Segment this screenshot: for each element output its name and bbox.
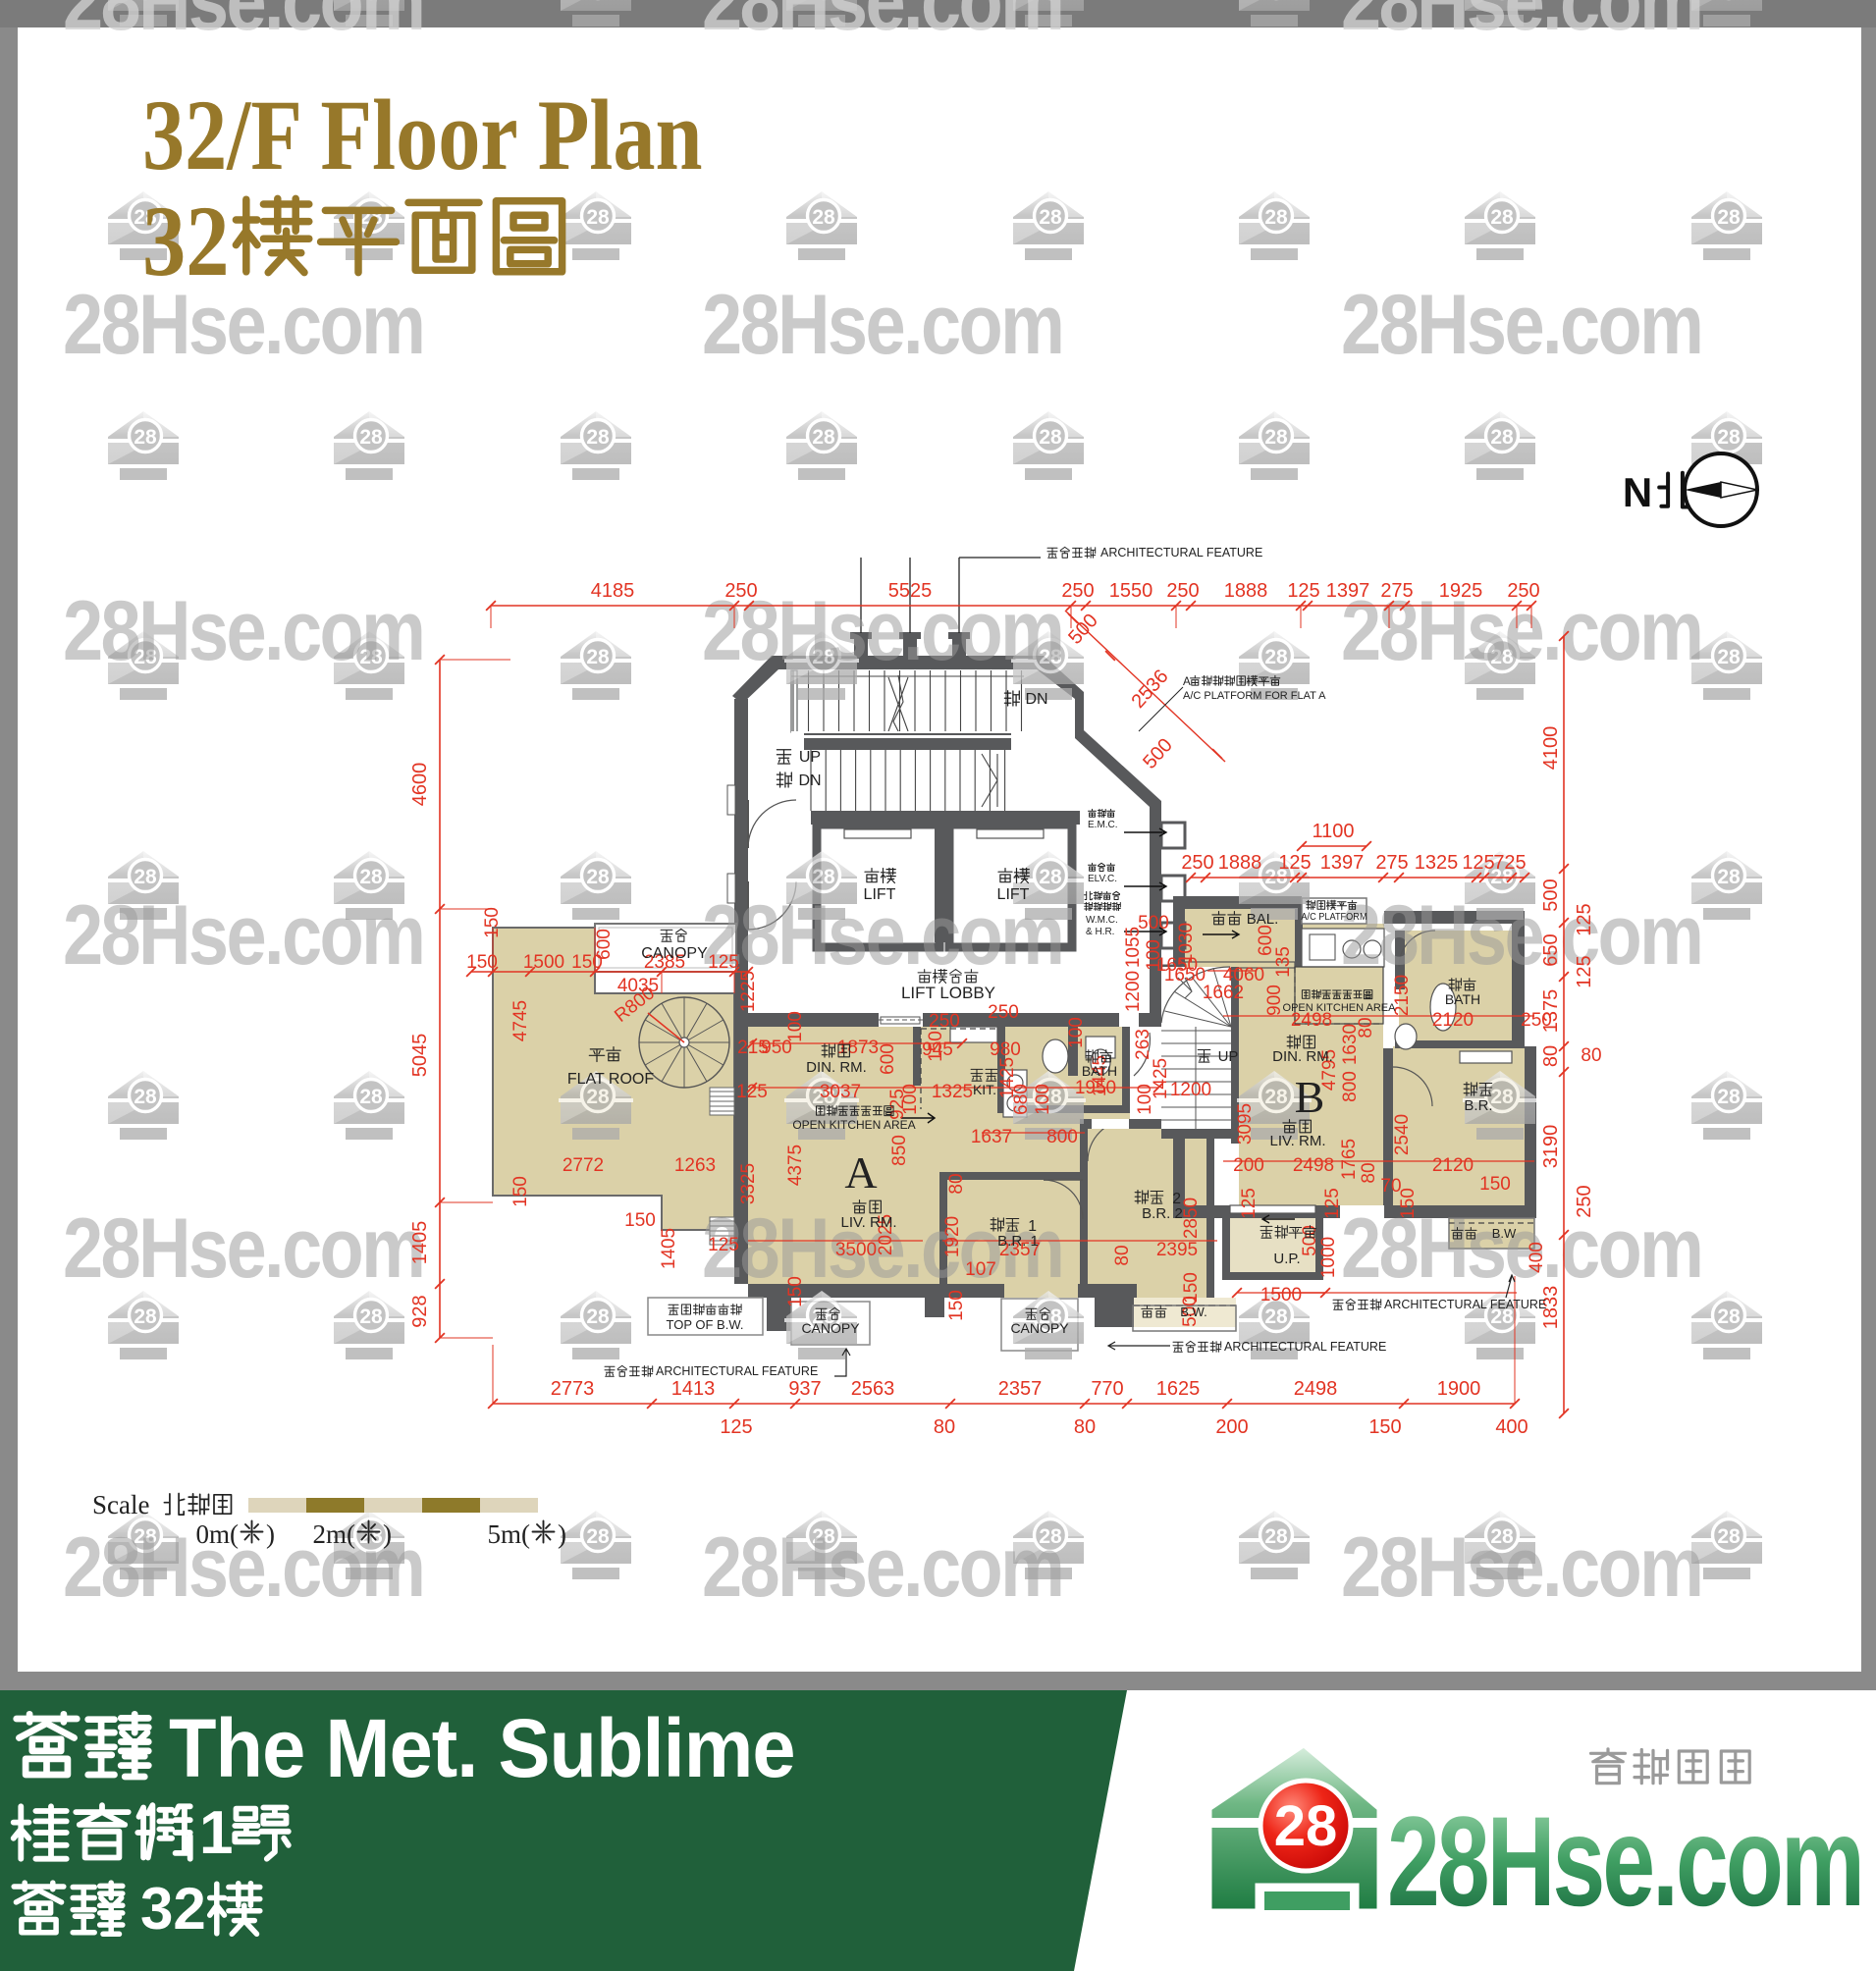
svg-text:1900: 1900 — [1437, 1378, 1481, 1400]
svg-text:1920: 1920 — [942, 1216, 963, 1257]
svg-text:28Hse.com: 28Hse.com — [63, 1200, 423, 1296]
svg-text:275: 275 — [1375, 852, 1408, 874]
svg-text:E.M.C.: E.M.C. — [1088, 820, 1118, 830]
svg-text:OPEN KITCHEN AREA: OPEN KITCHEN AREA — [1283, 1002, 1397, 1014]
svg-text:928: 928 — [409, 1295, 431, 1327]
svg-text:3190: 3190 — [1540, 1125, 1562, 1169]
svg-text:150: 150 — [926, 1031, 946, 1062]
svg-text:28Hse.com: 28Hse.com — [1341, 1200, 1701, 1296]
svg-text:LIV. RM.: LIV. RM. — [841, 1214, 897, 1231]
svg-text:3095: 3095 — [1235, 1103, 1256, 1145]
svg-text:2m(: 2m( — [313, 1519, 356, 1549]
svg-text:1405: 1405 — [409, 1221, 431, 1265]
svg-text:28Hse.com: 28Hse.com — [702, 277, 1062, 372]
svg-text:OPEN KITCHEN AREA: OPEN KITCHEN AREA — [792, 1118, 915, 1132]
svg-text:800: 800 — [1046, 1127, 1078, 1147]
svg-text:150: 150 — [946, 1290, 967, 1321]
svg-text:3037: 3037 — [820, 1082, 861, 1102]
svg-text:): ) — [558, 1519, 566, 1549]
svg-text:1630: 1630 — [1340, 1024, 1361, 1065]
svg-text:2563: 2563 — [851, 1378, 895, 1400]
svg-text:32/F Floor Plan: 32/F Floor Plan — [142, 79, 703, 191]
svg-text:937: 937 — [788, 1378, 821, 1400]
svg-text:28Hse.com: 28Hse.com — [702, 0, 1062, 47]
svg-text:150: 150 — [1479, 1174, 1511, 1195]
svg-text:Scale: Scale — [92, 1490, 149, 1519]
svg-text:150: 150 — [510, 1176, 531, 1207]
svg-text:5525: 5525 — [888, 580, 933, 602]
svg-text:ARCHITECTURAL FEATURE: ARCHITECTURAL FEATURE — [1100, 546, 1262, 559]
svg-text:B.W.: B.W. — [1180, 1305, 1206, 1319]
svg-text:250: 250 — [1507, 580, 1539, 602]
svg-text:250: 250 — [1574, 1185, 1595, 1217]
svg-text:2395: 2395 — [1156, 1240, 1198, 1260]
svg-text:DN: DN — [1025, 691, 1047, 708]
svg-text:28Hse.com: 28Hse.com — [1341, 887, 1701, 983]
svg-text:125: 125 — [1322, 1188, 1343, 1219]
svg-text:LIFT: LIFT — [864, 886, 896, 903]
svg-text:125: 125 — [1287, 580, 1319, 602]
svg-text:28Hse.com: 28Hse.com — [63, 583, 423, 678]
svg-text:28: 28 — [1274, 1794, 1338, 1858]
svg-text:1263: 1263 — [674, 1155, 716, 1176]
svg-text:80: 80 — [1540, 1045, 1562, 1067]
svg-text:B.R.: B.R. — [1464, 1097, 1492, 1114]
svg-text:BATH: BATH — [1445, 991, 1480, 1007]
svg-text:BAL.: BAL. — [1247, 911, 1279, 928]
svg-text:DIN. RM.: DIN. RM. — [806, 1059, 867, 1076]
svg-text:1405: 1405 — [659, 1228, 679, 1269]
svg-text:275: 275 — [1380, 580, 1413, 602]
svg-text:1500: 1500 — [523, 952, 564, 973]
svg-text:5045: 5045 — [409, 1034, 431, 1078]
svg-text:FLAT ROOF: FLAT ROOF — [567, 1071, 655, 1088]
svg-text:B.W: B.W — [1492, 1226, 1517, 1241]
svg-text:1650: 1650 — [1156, 955, 1198, 976]
svg-text:4600: 4600 — [409, 763, 431, 807]
svg-text:70: 70 — [1380, 1176, 1401, 1197]
svg-text:250: 250 — [1061, 580, 1094, 602]
svg-text:0m(: 0m( — [196, 1519, 240, 1549]
svg-text:28Hse.com: 28Hse.com — [63, 277, 423, 372]
svg-text:80: 80 — [1581, 1045, 1601, 1066]
svg-text:770: 770 — [1091, 1378, 1123, 1400]
svg-text:125: 125 — [736, 1082, 768, 1102]
svg-text:A/C PLATFORM: A/C PLATFORM — [1301, 912, 1367, 923]
svg-text:250: 250 — [929, 1011, 960, 1032]
svg-text:100: 100 — [1066, 1017, 1087, 1048]
svg-text:ARCHITECTURAL FEATURE: ARCHITECTURAL FEATURE — [1224, 1340, 1386, 1354]
svg-text:125: 125 — [1462, 852, 1494, 874]
svg-text:100: 100 — [1033, 1084, 1053, 1115]
svg-text:The Met. Sublime: The Met. Sublime — [169, 1703, 795, 1795]
svg-text:LIFT: LIFT — [997, 886, 1030, 903]
svg-text:1397: 1397 — [1326, 580, 1370, 602]
svg-text:200: 200 — [1233, 1155, 1264, 1176]
svg-text:500: 500 — [1300, 1225, 1320, 1256]
svg-text:1397: 1397 — [1320, 852, 1365, 874]
svg-text:400: 400 — [1495, 1416, 1528, 1438]
svg-text:2772: 2772 — [563, 1155, 604, 1176]
svg-text:LIV. RM.: LIV. RM. — [1270, 1133, 1326, 1149]
svg-text:2357: 2357 — [998, 1378, 1043, 1400]
svg-text:1100: 1100 — [1312, 821, 1354, 842]
svg-text:600: 600 — [878, 1043, 898, 1075]
svg-text:125: 125 — [1574, 955, 1595, 987]
svg-text:250: 250 — [988, 1002, 1019, 1023]
svg-text:150: 150 — [785, 1276, 806, 1307]
svg-text:1550: 1550 — [1109, 580, 1153, 602]
svg-text:W.M.C.: W.M.C. — [1086, 915, 1118, 926]
svg-text:B: B — [1295, 1072, 1325, 1122]
svg-text:& H.R.: & H.R. — [1086, 927, 1114, 937]
svg-text:DIN. RM.: DIN. RM. — [1272, 1048, 1333, 1065]
svg-text:ELV.C.: ELV.C. — [1088, 874, 1117, 884]
svg-text:): ) — [383, 1519, 392, 1549]
svg-text:1225: 1225 — [738, 971, 759, 1012]
svg-text:3500: 3500 — [835, 1240, 877, 1260]
svg-text:4100: 4100 — [1540, 726, 1562, 771]
svg-text:2498: 2498 — [1293, 1155, 1334, 1176]
svg-text:1888: 1888 — [1224, 580, 1268, 602]
svg-text:1925: 1925 — [1439, 580, 1483, 602]
svg-text:125: 125 — [708, 952, 739, 973]
svg-text:125: 125 — [708, 1235, 739, 1255]
svg-text:N: N — [1623, 469, 1652, 515]
svg-text:UP: UP — [799, 749, 821, 766]
svg-text:725: 725 — [1493, 852, 1526, 874]
svg-text:TOP OF B.W.: TOP OF B.W. — [667, 1317, 744, 1332]
svg-text:U.P.: U.P. — [1273, 1251, 1300, 1267]
svg-text:28Hse.com: 28Hse.com — [63, 0, 423, 47]
svg-text:2120: 2120 — [1432, 1010, 1474, 1031]
svg-text:1500: 1500 — [1260, 1285, 1302, 1305]
svg-text:150: 150 — [1181, 1272, 1202, 1304]
svg-text:4745: 4745 — [510, 1000, 531, 1041]
svg-text:950: 950 — [761, 1038, 792, 1058]
svg-text:263: 263 — [1133, 1029, 1153, 1060]
svg-text:1888: 1888 — [1218, 852, 1262, 874]
svg-text:B.R. 2: B.R. 2 — [1142, 1205, 1183, 1222]
svg-text:1765: 1765 — [1339, 1139, 1360, 1180]
svg-text:A: A — [1183, 675, 1191, 688]
svg-text:200: 200 — [1215, 1416, 1248, 1438]
svg-text:KIT.: KIT. — [973, 1082, 996, 1097]
svg-text:80: 80 — [946, 1173, 967, 1194]
svg-text:680: 680 — [1011, 1084, 1032, 1115]
svg-text:B.R. 1: B.R. 1 — [997, 1233, 1039, 1250]
svg-text:80: 80 — [1112, 1245, 1133, 1265]
svg-text:980: 980 — [990, 1039, 1021, 1060]
svg-text:1425: 1425 — [1151, 1058, 1171, 1099]
svg-text:250: 250 — [1166, 580, 1199, 602]
svg-text:850: 850 — [889, 1135, 910, 1166]
svg-text:CANOPY: CANOPY — [1010, 1320, 1069, 1336]
svg-text:UP: UP — [1218, 1048, 1239, 1065]
svg-text:1200: 1200 — [1170, 1080, 1211, 1100]
svg-text:1662: 1662 — [1203, 983, 1244, 1003]
svg-text:28Hse.com: 28Hse.com — [63, 887, 423, 983]
svg-text:1625: 1625 — [1156, 1378, 1201, 1400]
svg-text:3325: 3325 — [738, 1163, 759, 1204]
svg-text:ARCHITECTURAL FEATURE: ARCHITECTURAL FEATURE — [1384, 1298, 1546, 1311]
svg-text:2540: 2540 — [1392, 1114, 1413, 1155]
svg-text:80: 80 — [1359, 1162, 1379, 1183]
svg-text:32: 32 — [142, 185, 230, 297]
svg-text:125: 125 — [1239, 1188, 1260, 1219]
svg-text:5m(: 5m( — [488, 1519, 531, 1549]
svg-text:28Hse.com: 28Hse.com — [1387, 1790, 1862, 1933]
svg-text:250: 250 — [1521, 1010, 1552, 1031]
svg-text:1325: 1325 — [1415, 852, 1459, 874]
svg-text:): ) — [266, 1519, 275, 1549]
svg-text:1413: 1413 — [671, 1378, 716, 1400]
svg-text:4375: 4375 — [785, 1145, 806, 1186]
svg-text:650: 650 — [1540, 933, 1562, 966]
svg-text:1200: 1200 — [1123, 971, 1144, 1012]
svg-text:28Hse.com: 28Hse.com — [1341, 0, 1701, 47]
svg-text:600: 600 — [594, 929, 615, 960]
svg-text:CANOPY: CANOPY — [641, 945, 708, 962]
svg-text:A/C PLATFORM FOR FLAT A: A/C PLATFORM FOR FLAT A — [1183, 690, 1326, 702]
svg-text:250: 250 — [724, 580, 757, 602]
svg-text:4185: 4185 — [591, 580, 635, 602]
svg-text:1637: 1637 — [971, 1127, 1012, 1147]
svg-text:80: 80 — [1074, 1416, 1096, 1438]
svg-text:28Hse.com: 28Hse.com — [1341, 1519, 1701, 1615]
svg-text:28Hse.com: 28Hse.com — [1341, 277, 1701, 372]
svg-text:800: 800 — [1340, 1071, 1361, 1102]
svg-text:BATH: BATH — [1082, 1063, 1117, 1079]
svg-text:1: 1 — [199, 1799, 233, 1867]
svg-text:150: 150 — [1368, 1416, 1401, 1438]
svg-text:400: 400 — [1527, 1242, 1547, 1273]
svg-text:LIFT LOBBY: LIFT LOBBY — [901, 984, 995, 1002]
svg-text:107: 107 — [965, 1259, 996, 1280]
svg-text:150: 150 — [624, 1210, 656, 1231]
svg-text:135: 135 — [1273, 946, 1294, 978]
svg-text:DN: DN — [798, 772, 821, 789]
svg-text:2120: 2120 — [1432, 1155, 1474, 1176]
svg-text:250: 250 — [1181, 852, 1213, 874]
svg-text:ARCHITECTURAL FEATURE: ARCHITECTURAL FEATURE — [656, 1364, 818, 1378]
svg-text:28Hse.com: 28Hse.com — [702, 1519, 1062, 1615]
svg-text:CANOPY: CANOPY — [801, 1320, 860, 1336]
svg-text:2498: 2498 — [1294, 1378, 1338, 1400]
svg-text:32: 32 — [140, 1876, 206, 1942]
svg-text:2850: 2850 — [1181, 1198, 1202, 1239]
svg-text:2773: 2773 — [551, 1378, 595, 1400]
svg-text:1055: 1055 — [1123, 927, 1144, 968]
svg-text:125: 125 — [1574, 903, 1595, 935]
svg-text:A: A — [844, 1147, 877, 1198]
svg-text:125: 125 — [1278, 852, 1311, 874]
svg-text:100: 100 — [900, 1084, 921, 1115]
svg-text:1325: 1325 — [932, 1082, 973, 1102]
svg-text:80: 80 — [934, 1416, 955, 1438]
svg-text:500: 500 — [1540, 879, 1562, 911]
svg-text:125: 125 — [720, 1416, 752, 1438]
svg-text:1000: 1000 — [1318, 1237, 1339, 1278]
